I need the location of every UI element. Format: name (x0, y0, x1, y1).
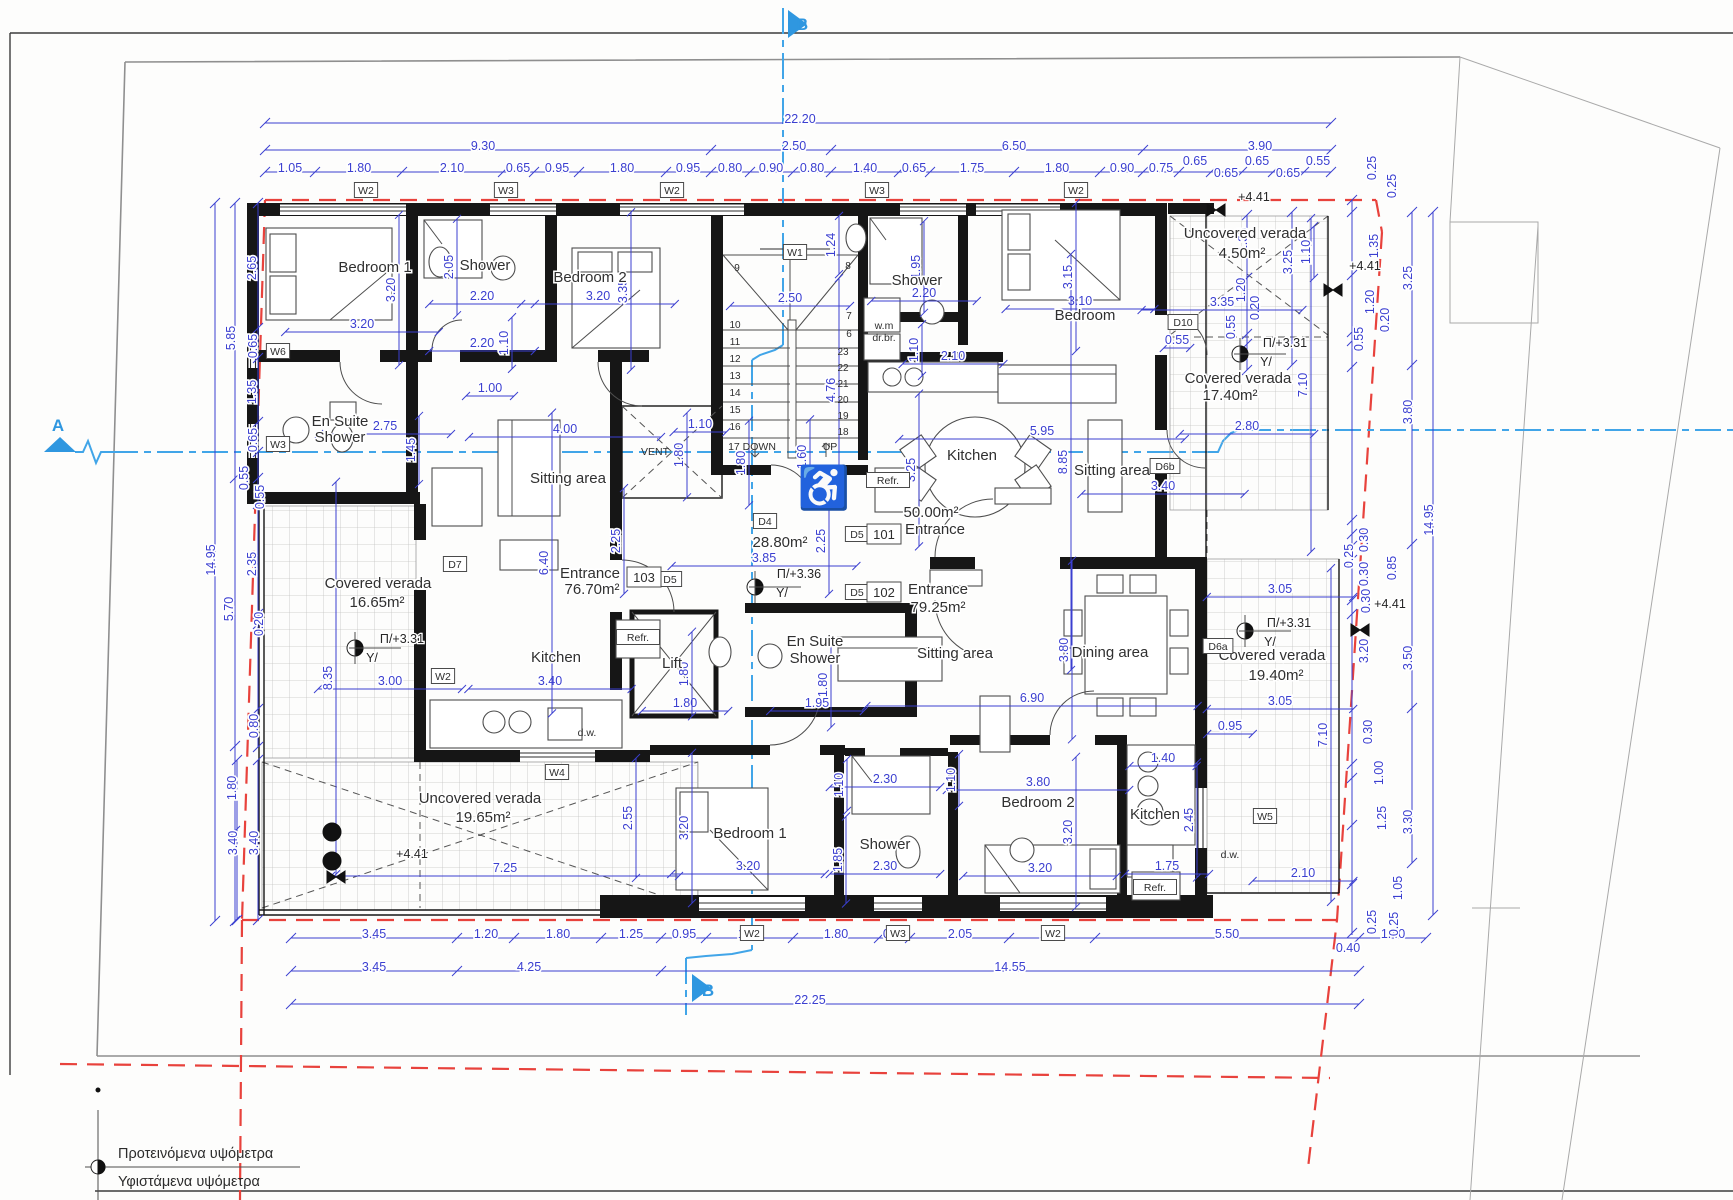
dimension-label: 1.80 (672, 443, 686, 467)
text-label: dr.br. (872, 332, 895, 344)
stair-number: 10 (729, 320, 741, 331)
tag-label: W2 (1045, 928, 1061, 940)
dimension-label: 3.20 (350, 317, 374, 331)
dimension-label: 14.55 (994, 960, 1025, 974)
dimension-label: 0.80 (718, 161, 742, 175)
dimension-label: 2.25 (609, 529, 623, 553)
room-label: 50.00m² (903, 504, 958, 521)
tag-label: Refr. (1144, 882, 1166, 894)
dimension-label: 3.85 (752, 551, 776, 565)
dimension-label: 0.55 (253, 485, 267, 509)
tag-label: W2 (664, 185, 680, 197)
dimension-label: 2.80 (1235, 419, 1259, 433)
dimension-label: 2.55 (621, 806, 635, 830)
dimension-label: 1.10 (907, 338, 921, 362)
dimension-label: 1.00 (478, 381, 502, 395)
room-label: 19.65m² (455, 809, 510, 826)
tag-label: 102 (873, 585, 895, 600)
room-label: Kitchen (947, 447, 997, 464)
dimension-label: 1.10 (1299, 240, 1313, 264)
dimension-label: 1.24 (824, 233, 838, 257)
tag-label: D7 (448, 559, 462, 571)
dimension-label: 0.25 (1385, 174, 1399, 198)
dimension-label: 0.65 (902, 161, 926, 175)
stair-number: 12 (729, 354, 741, 365)
dimension-label: 1.10 (688, 417, 712, 431)
stair-number: 21 (837, 379, 849, 390)
tag-label: W3 (890, 928, 906, 940)
stair-number: 6 (846, 329, 852, 340)
elevation-label: Y/ (776, 586, 788, 600)
elevation-label: +4.41 (1374, 597, 1406, 611)
tag-label: W3 (498, 185, 514, 197)
room-label: Shower (790, 650, 841, 667)
room-label: 4.50m² (1219, 245, 1266, 262)
dimension-label: 0.90 (1110, 161, 1134, 175)
dimension-label: 14.95 (204, 544, 218, 575)
dimension-label: 2.05 (442, 255, 456, 279)
dimension-label: 0.20 (252, 612, 266, 636)
dimension-label: 3.45 (362, 927, 386, 941)
tag-label: Refr. (627, 632, 649, 644)
dimension-label: 3.90 (1248, 139, 1272, 153)
dimension-label: 2.75 (373, 419, 397, 433)
dimension-label: 2.35 (245, 552, 259, 576)
dimension-label: 1.75 (1155, 859, 1179, 873)
stair-number: 16 (729, 422, 741, 433)
dimension-label: 3.05 (1268, 694, 1292, 708)
text-label: UP (823, 441, 838, 453)
section-letter: A (52, 416, 64, 435)
room-label: Entrance (905, 521, 965, 538)
dimension-label: 0.80 (800, 161, 824, 175)
dimension-label: 1.25 (1375, 806, 1389, 830)
dimension-label: 1.45 (404, 438, 418, 462)
legend-text: Προτεινόμενα υψόμετρα (118, 1146, 273, 1162)
tag-label: Refr. (877, 475, 899, 487)
dimension-label: 22.20 (784, 112, 815, 126)
room-label: Shower (860, 836, 911, 853)
dimension-label: 7.25 (493, 861, 517, 875)
dimension-label: 3.20 (736, 859, 760, 873)
dimension-label: 0.65 (246, 334, 260, 358)
dimension-label: 5.85 (224, 326, 238, 350)
dimension-label: 1.35 (245, 380, 259, 404)
dimension-label: 3.40 (1151, 479, 1175, 493)
tag-label: W2 (435, 671, 451, 683)
dimension-label: 0.95 (1218, 719, 1242, 733)
text-label: d.w. (578, 727, 597, 739)
room-label: 17.40m² (1202, 387, 1257, 404)
tag-label: W3 (869, 185, 885, 197)
stair-number: 23 (837, 347, 849, 358)
room-label: Covered verada (1219, 647, 1326, 664)
dimension-label: 1.80 (673, 696, 697, 710)
tag-label: D6a (1208, 641, 1227, 653)
dimension-label: 1.10 (497, 331, 511, 355)
stair-number: 13 (729, 371, 741, 382)
room-label: Bedroom 1 (713, 825, 786, 842)
dimension-label: 3.15 (1061, 265, 1075, 289)
dimension-label: 3.00 (378, 674, 402, 688)
dimension-label: 3.45 (362, 960, 386, 974)
dimension-label: 0.30 (1357, 562, 1371, 586)
section-arrow-a (44, 437, 76, 452)
dimension-label: 6.90 (1020, 691, 1044, 705)
dimension-label: 4.00 (553, 422, 577, 436)
room-label: Covered verada (325, 575, 432, 592)
dimension-label: 1.80 (734, 451, 748, 475)
dimension-label: 0.55 (1224, 315, 1238, 339)
dimension-label: 0.25 (1342, 544, 1356, 568)
elevation-label: Π/+3.36 (777, 567, 821, 581)
text-label: VENT (641, 446, 670, 458)
dimension-label: 0.65 (1276, 166, 1300, 180)
dimension-label: 1.80 (546, 927, 570, 941)
dimension-label: 3.30 (1401, 810, 1415, 834)
dimension-label: 2.10 (1291, 866, 1315, 880)
dimension-label: 2.65 (245, 256, 259, 280)
stair-number: 9 (734, 263, 740, 274)
section-letter: B (796, 15, 808, 34)
dimension-label: 1.10 (832, 773, 846, 797)
elevation-label: +4.41 (396, 847, 428, 861)
dimension-label: 3.20 (586, 289, 610, 303)
room-label: Shower (315, 429, 366, 446)
dimension-label: 0.30 (1359, 589, 1373, 613)
dimension-label: 0.20 (1378, 308, 1392, 332)
room-label: Uncovered verada (419, 790, 542, 807)
dimension-label: 0.20 (1248, 296, 1262, 320)
dimension-label: 1.20 (1234, 278, 1248, 302)
dimension-label: 1.20 (474, 927, 498, 941)
dimension-label: 3.20 (384, 278, 398, 302)
stair-number: 15 (729, 405, 741, 416)
dimension-label: 1.80 (610, 161, 634, 175)
dimension-label: 2.50 (778, 291, 802, 305)
elevation-label: Y/ (366, 651, 378, 665)
dimension-label: 2.05 (948, 927, 972, 941)
tag-label: W2 (1068, 185, 1084, 197)
dimension-label: 3.20 (677, 816, 691, 840)
room-label: Sitting area (917, 645, 994, 662)
dimension-label: 0.25 (1365, 910, 1379, 934)
dimension-label: 1.10 (944, 768, 958, 792)
elevation-label: Y/ (1264, 635, 1276, 649)
dimension-label: 0.55 (1352, 327, 1366, 351)
dimension-label: 5.70 (222, 597, 236, 621)
dimension-label: 0.55 (237, 466, 251, 490)
room-label: Lift (662, 655, 683, 672)
dimension-label: 3.20 (1061, 820, 1075, 844)
dimension-label: 1.25 (619, 927, 643, 941)
room-label: Kitchen (1130, 806, 1180, 823)
dimension-label: 3.20 (1028, 861, 1052, 875)
tag-label: 101 (873, 527, 895, 542)
tag-label: D5 (850, 529, 864, 541)
dimension-label: 3.80 (1026, 775, 1050, 789)
room-label: Shower (892, 272, 943, 289)
elevation-bowtie-marker (1351, 624, 1369, 636)
stair-number: 22 (837, 363, 849, 374)
dimension-label: 0.55 (1306, 154, 1330, 168)
tag-label: W5 (1257, 811, 1273, 823)
stair-number: 20 (837, 395, 849, 406)
elevation-label: Π/+3.31 (1267, 616, 1311, 630)
dimension-label: 4.25 (517, 960, 541, 974)
room-label: Entrance (908, 581, 968, 598)
wheelchair-icon: ♿ (798, 463, 850, 512)
dimension-label: 1.00 (1372, 761, 1386, 785)
tag-label: W2 (358, 185, 374, 197)
dimension-label: 1.80 (1045, 161, 1069, 175)
legend-text: Υφιστάμενα υψόμετρα (118, 1174, 260, 1190)
dimension-label: 1.80 (225, 776, 239, 800)
dimension-label: 8.35 (321, 666, 335, 690)
dimension-label: 3.25 (1401, 266, 1415, 290)
dimension-label: 0.25 (1387, 912, 1401, 936)
dimension-label: 3.50 (1401, 646, 1415, 670)
dimension-label: 0.90 (759, 161, 783, 175)
stair-number: 7 (846, 311, 852, 322)
dimension-label: 8.85 (1056, 450, 1070, 474)
dimension-label: 3.40 (247, 831, 261, 855)
dimension-label: 0.55 (1165, 333, 1189, 347)
tag-label: D5 (663, 574, 677, 586)
room-label: En Suite (312, 413, 369, 430)
tag-label: W3 (270, 439, 286, 451)
dimension-label: 0.80 (247, 714, 261, 738)
tag-label: D5 (850, 587, 864, 599)
dimension-label: 6.40 (537, 551, 551, 575)
dimension-label: 9.30 (471, 139, 495, 153)
dimension-label: 3.05 (1268, 582, 1292, 596)
room-label: Bedroom (1055, 307, 1116, 324)
room-label: Bedroom 1 (338, 259, 411, 276)
room-label: 79.25m² (910, 599, 965, 616)
tag-label: W6 (270, 346, 286, 358)
room-label: Entrance (560, 565, 620, 582)
dimension-label: 6.50 (1002, 139, 1026, 153)
dimension-label: 0.65 (1245, 154, 1269, 168)
dimension-label: 22.25 (794, 993, 825, 1007)
stair-number: 14 (729, 388, 741, 399)
room-label: En Suite (787, 633, 844, 650)
room-label: 16.65m² (349, 594, 404, 611)
room-label: Sitting area (530, 470, 607, 487)
room-label: Bedroom 2 (1001, 794, 1074, 811)
dimension-label: 4.76 (824, 378, 838, 402)
dimension-label: 0.95 (676, 161, 700, 175)
room-label: 76.70m² (564, 581, 619, 598)
dimension-label: 2.50 (782, 139, 806, 153)
dimension-label: 7.10 (1296, 373, 1310, 397)
column-dot (323, 852, 341, 870)
room-label: Dining area (1072, 644, 1149, 661)
dimension-label: 0.25 (1365, 156, 1379, 180)
dimension-label: 0.95 (672, 927, 696, 941)
floor-plan-canvas: 22.209.302.506.503.901.051.802.100.650.9… (0, 0, 1733, 1200)
tag-label: D6b (1155, 461, 1174, 473)
dimension-label: 2.20 (470, 336, 494, 350)
dimension-label: 2.20 (470, 289, 494, 303)
dimension-label: 3.25 (1281, 250, 1295, 274)
elevation-label: +4.41 (1349, 259, 1381, 273)
dimension-label: 2.10 (440, 161, 464, 175)
dimension-label: 3.20 (1357, 639, 1371, 663)
tag-label: W2 (744, 928, 760, 940)
dimension-label: 1.80 (816, 673, 830, 697)
floor-plan-drawing: 22.209.302.506.503.901.051.802.100.650.9… (0, 0, 1733, 1200)
dimension-label: 1.40 (1151, 751, 1175, 765)
elevation-label: +4.41 (1238, 190, 1270, 204)
column-dot (323, 823, 341, 841)
dimension-label: 2.30 (873, 772, 897, 786)
dimension-label: 0.65 (506, 161, 530, 175)
section-letter: B (702, 981, 714, 1000)
stair-number: 11 (730, 337, 741, 348)
dimension-label: 3.80 (1057, 638, 1071, 662)
dimension-label: 2.30 (873, 859, 897, 873)
dimension-label: 3.40 (538, 674, 562, 688)
tag-label: W4 (549, 767, 565, 779)
dimension-label: 1.20 (1363, 290, 1377, 314)
dimension-label: 1.75 (960, 161, 984, 175)
dimension-label: 2.10 (941, 349, 965, 363)
dimension-label: 1.85 (831, 848, 845, 872)
tag-label: W1 (787, 247, 803, 259)
dimension-label: 0.30 (1361, 720, 1375, 744)
dimension-label: 5.95 (1030, 424, 1054, 438)
dimension-label: 0.65 (1183, 154, 1207, 168)
stair-number: 19 (837, 411, 849, 422)
dimension-label: 0.95 (545, 161, 569, 175)
text-label: 17 DOWN (728, 441, 776, 453)
dimension-label: 0.85 (1385, 556, 1399, 580)
dimension-label: 2.25 (814, 529, 828, 553)
dimension-label: 1.40 (853, 161, 877, 175)
dimension-label: 3.35 (1210, 295, 1234, 309)
elevation-bowtie-marker (1207, 204, 1225, 216)
dimension-label: 1.80 (824, 927, 848, 941)
elevation-bowtie-marker (1324, 284, 1342, 296)
tag-label: D4 (758, 516, 772, 528)
dimension-label: 3.80 (1401, 400, 1415, 424)
room-label: Kitchen (531, 649, 581, 666)
dimension-label: 0.30 (1357, 528, 1371, 552)
dimension-label: 1.80 (347, 161, 371, 175)
room-label: Sitting area (1074, 462, 1151, 479)
dimension-label: 1.35 (1367, 234, 1381, 258)
dimension-label: 0.65 (1214, 166, 1238, 180)
dimension-label: 1.05 (278, 161, 302, 175)
dimension-label: 0.40 (1336, 941, 1360, 955)
text-label: d.w. (1221, 849, 1240, 861)
room-label: Bedroom 2 (553, 269, 626, 286)
dimension-label: 2.45 (1182, 808, 1196, 832)
dimension-label: 5.50 (1215, 927, 1239, 941)
room-label: 19.40m² (1248, 667, 1303, 684)
room-label: Uncovered verada (1184, 225, 1307, 242)
dimension-label: 3.40 (226, 831, 240, 855)
stair-number: 18 (837, 427, 849, 438)
elevation-label: Π/+3.31 (380, 632, 424, 646)
dimension-label: 1.05 (1391, 876, 1405, 900)
room-label: Covered verada (1185, 370, 1292, 387)
stair-number: 8 (845, 261, 851, 272)
dimension-label: 0.65 (246, 428, 260, 452)
text-label: w.m (874, 320, 894, 332)
room-label: Shower (460, 257, 511, 274)
elevation-label: Y/ (1260, 355, 1272, 369)
elevation-label: Π/+3.31 (1263, 336, 1307, 350)
tag-label: 103 (633, 570, 655, 585)
dimension-label: 0.75 (1149, 161, 1173, 175)
dimension-label: 14.95 (1422, 504, 1436, 535)
room-label: 28.80m² (752, 534, 807, 551)
tag-label: D10 (1173, 317, 1192, 329)
dimension-label: 7.10 (1316, 723, 1330, 747)
